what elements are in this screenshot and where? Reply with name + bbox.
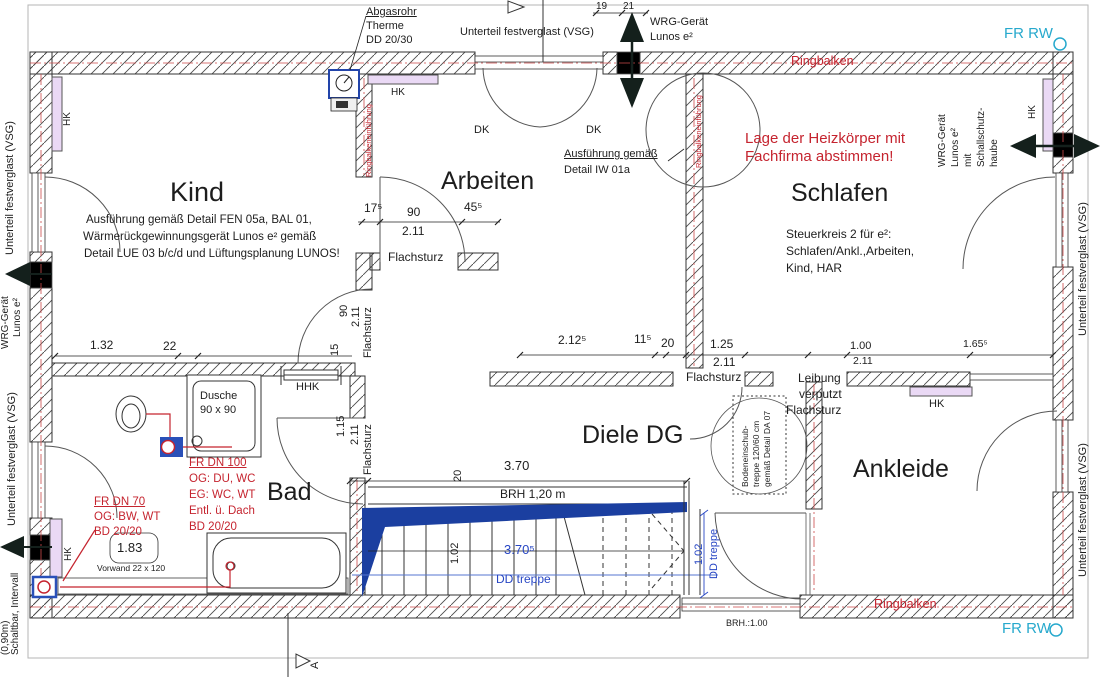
- label-leibung-2: verputzt: [799, 388, 842, 401]
- label-hhk: HHK: [296, 381, 319, 393]
- label-brh100: BRH.:1.00: [726, 619, 768, 629]
- window-glazing: [32, 56, 1068, 611]
- label-hk-arbeiten: HK: [391, 87, 405, 98]
- label-flachsturz-b: Flachsturz: [686, 371, 741, 384]
- radiator: [50, 75, 1053, 577]
- label-fr-rw-top: FR RW: [1004, 26, 1053, 43]
- room-arbeiten: Arbeiten: [441, 168, 534, 196]
- note-steuerkreis-3: Kind, HAR: [786, 262, 842, 275]
- dim-211-a: 2.11: [402, 225, 424, 238]
- label-wrg-left-2: Lunos e²: [12, 298, 23, 337]
- dim-1655: 1.65⁵: [963, 339, 988, 351]
- room-ankleide: Ankleide: [853, 456, 949, 484]
- therme-symbol: [329, 70, 359, 111]
- dim-20: 20: [661, 337, 674, 350]
- note-kind-2: Wärmerückgewinnungsgerät Lunos e² gemäß: [83, 231, 316, 244]
- label-edge-cut: (0,90m): [0, 621, 11, 655]
- toilet: [116, 396, 146, 432]
- note-fr100-2: OG: DU, WC: [189, 473, 255, 486]
- label-ringbalkeneinf-1: Ringbalkeneinführung: [365, 104, 373, 177]
- dim-3705: 3.70⁵: [504, 543, 535, 557]
- room-schlafen: Schlafen: [791, 180, 888, 208]
- label-wrg-right-3: mit: [963, 154, 974, 167]
- paper-border: [28, 5, 1088, 658]
- dim-175: 17⁵: [364, 202, 382, 215]
- label-leibung-3: Flachsturz: [786, 404, 841, 417]
- dim-125: 1.25: [710, 338, 733, 351]
- note-fr100-1: FR DN 100: [189, 457, 247, 470]
- label-dusche-1: Dusche: [200, 390, 237, 402]
- note-fr100-4: Entl. ü. Dach: [189, 505, 255, 518]
- label-wrg-right-2: Lunos e²: [950, 128, 961, 167]
- stair-run: [352, 481, 810, 597]
- label-hk-schlafen: HK: [1027, 105, 1038, 119]
- dim-100: 1.00: [850, 340, 871, 352]
- dim-211-c: 2.11: [853, 356, 873, 368]
- dim-183: 1.83: [117, 541, 142, 555]
- note-heizkoerper-2: Fachfirma abstimmen!: [745, 149, 893, 166]
- dim-115: 11⁵: [634, 333, 651, 346]
- note-fr100-5: BD 20/20: [189, 521, 237, 534]
- label-top-window: Unterteil festverglast (VSG): [460, 26, 594, 38]
- label-dk-left: DK: [474, 124, 489, 136]
- dim-115-rot: 1.15: [335, 416, 347, 437]
- ringbalken-centerlines: [30, 63, 1073, 607]
- note-bodeneinschub-1: Bodeneinschub-: [741, 426, 750, 487]
- label-ringbalken-top: Ringbalken: [791, 55, 854, 69]
- floor-plan: AbgasrohrThermeDD 20/30Unterteil festver…: [0, 0, 1100, 677]
- note-kind-3: Detail LUE 03 b/c/d und Lüftungsplanung …: [84, 248, 340, 261]
- label-abgasrohr-3: DD 20/30: [366, 34, 412, 46]
- dim-102-left: 1.02: [449, 543, 461, 564]
- note-bodeneinschub-2: treppe 120/60 cm: [752, 421, 761, 487]
- note-kind-1: Ausführung gemäß Detail FEN 05a, BAL 01,: [86, 214, 312, 227]
- label-vsg-right-2: Unterteil festverglast (VSG): [1077, 443, 1089, 577]
- dim-22: 22: [163, 340, 176, 353]
- label-wrg-left-1: WRG-Gerät: [0, 296, 11, 349]
- label-abgasrohr-1: Abgasrohr: [366, 6, 417, 18]
- exterior-walls: [30, 52, 1073, 618]
- label-schaltbar: Schaltbar, Intervall: [10, 573, 21, 655]
- note-steuerkreis-1: Steuerkreis 2 für e²:: [786, 228, 891, 241]
- dim-21: 21: [623, 1, 634, 12]
- label-flachsturz-rot-b: Flachsturz: [362, 424, 374, 475]
- label-hk-bad: HK: [63, 547, 74, 561]
- label-vsg-left-1: Unterteil festverglast (VSG): [4, 121, 16, 255]
- label-dd-treppe-rot: DD treppe: [708, 529, 720, 579]
- label-vsg-right-1: Unterteil festverglast (VSG): [1077, 202, 1089, 336]
- dim-211-b: 2.11: [713, 356, 735, 369]
- dim-90: 90: [407, 206, 420, 219]
- label-section-a: A: [309, 662, 321, 669]
- note-bodeneinschub-3: gemäß Detail DA 07: [763, 411, 772, 487]
- label-vsg-left-2: Unterteil festverglast (VSG): [6, 392, 18, 526]
- label-abgasrohr-2: Therme: [366, 20, 404, 32]
- label-fr-rw-bottom: FR RW: [1002, 621, 1051, 638]
- label-wrg-right-1: WRG-Gerät: [937, 114, 948, 167]
- label-hk-ankleide: HK: [929, 398, 944, 410]
- room-kind: Kind: [170, 178, 224, 208]
- dim-19: 19: [596, 1, 607, 12]
- label-iw01a-1: Ausführung gemäß: [564, 148, 658, 160]
- dim-2125: 2.12⁵: [558, 334, 586, 347]
- label-ringbalken-bottom: Ringbalken: [874, 598, 937, 612]
- label-wrg-top-2: Lunos e²: [650, 31, 693, 43]
- label-ringbalkeneinf-2: Ringbalkeneinführung: [695, 95, 703, 168]
- note-fr70-2: OG: BW, WT: [94, 511, 160, 524]
- note-fr100-3: EG: WC, WT: [189, 489, 255, 502]
- dim-370: 3.70: [504, 459, 529, 473]
- dim-132: 1.32: [90, 339, 113, 352]
- label-flachsturz-rot-a: Flachsturz: [362, 307, 374, 358]
- label-dk-right: DK: [586, 124, 601, 136]
- dim-211-rot-a: 2.11: [350, 306, 362, 327]
- note-heizkoerper-1: Lage der Heizkörper mit: [745, 131, 905, 148]
- note-fr70-3: BD 20/20: [94, 526, 142, 539]
- note-fr70-1: FR DN 70: [94, 496, 145, 509]
- note-steuerkreis-2: Schlafen/Ankl.,Arbeiten,: [786, 245, 914, 258]
- label-flachsturz-a: Flachsturz: [388, 251, 443, 264]
- label-dd-treppe: DD treppe: [496, 573, 551, 586]
- label-leibung-1: Leibung: [798, 372, 841, 385]
- dim-90-rot: 90: [338, 305, 350, 317]
- door-swing-arcs: [45, 68, 1057, 599]
- label-brh120: BRH 1,20 m: [500, 488, 565, 501]
- label-dusche-2: 90 x 90: [200, 404, 236, 416]
- room-bad: Bad: [267, 479, 311, 507]
- label-wrg-right-5: haube: [989, 139, 1000, 167]
- label-vorwand: Vorwand 22 x 120: [97, 564, 165, 573]
- dim-15-rot: 15: [329, 344, 341, 356]
- dim-20-rot: 20: [452, 470, 464, 482]
- label-iw01a-2: Detail IW 01a: [564, 164, 630, 176]
- wrg-duct: [30, 52, 1073, 560]
- label-wrg-right-4: Schallschutz-: [976, 108, 987, 167]
- label-hk-kind: HK: [62, 112, 73, 126]
- dim-102-right: 1.02: [693, 544, 705, 565]
- dim-455: 45⁵: [464, 201, 482, 214]
- room-diele: Diele DG: [582, 422, 683, 450]
- dim-211-rot-b: 2.11: [349, 424, 361, 445]
- label-wrg-top-1: WRG-Gerät: [650, 16, 708, 28]
